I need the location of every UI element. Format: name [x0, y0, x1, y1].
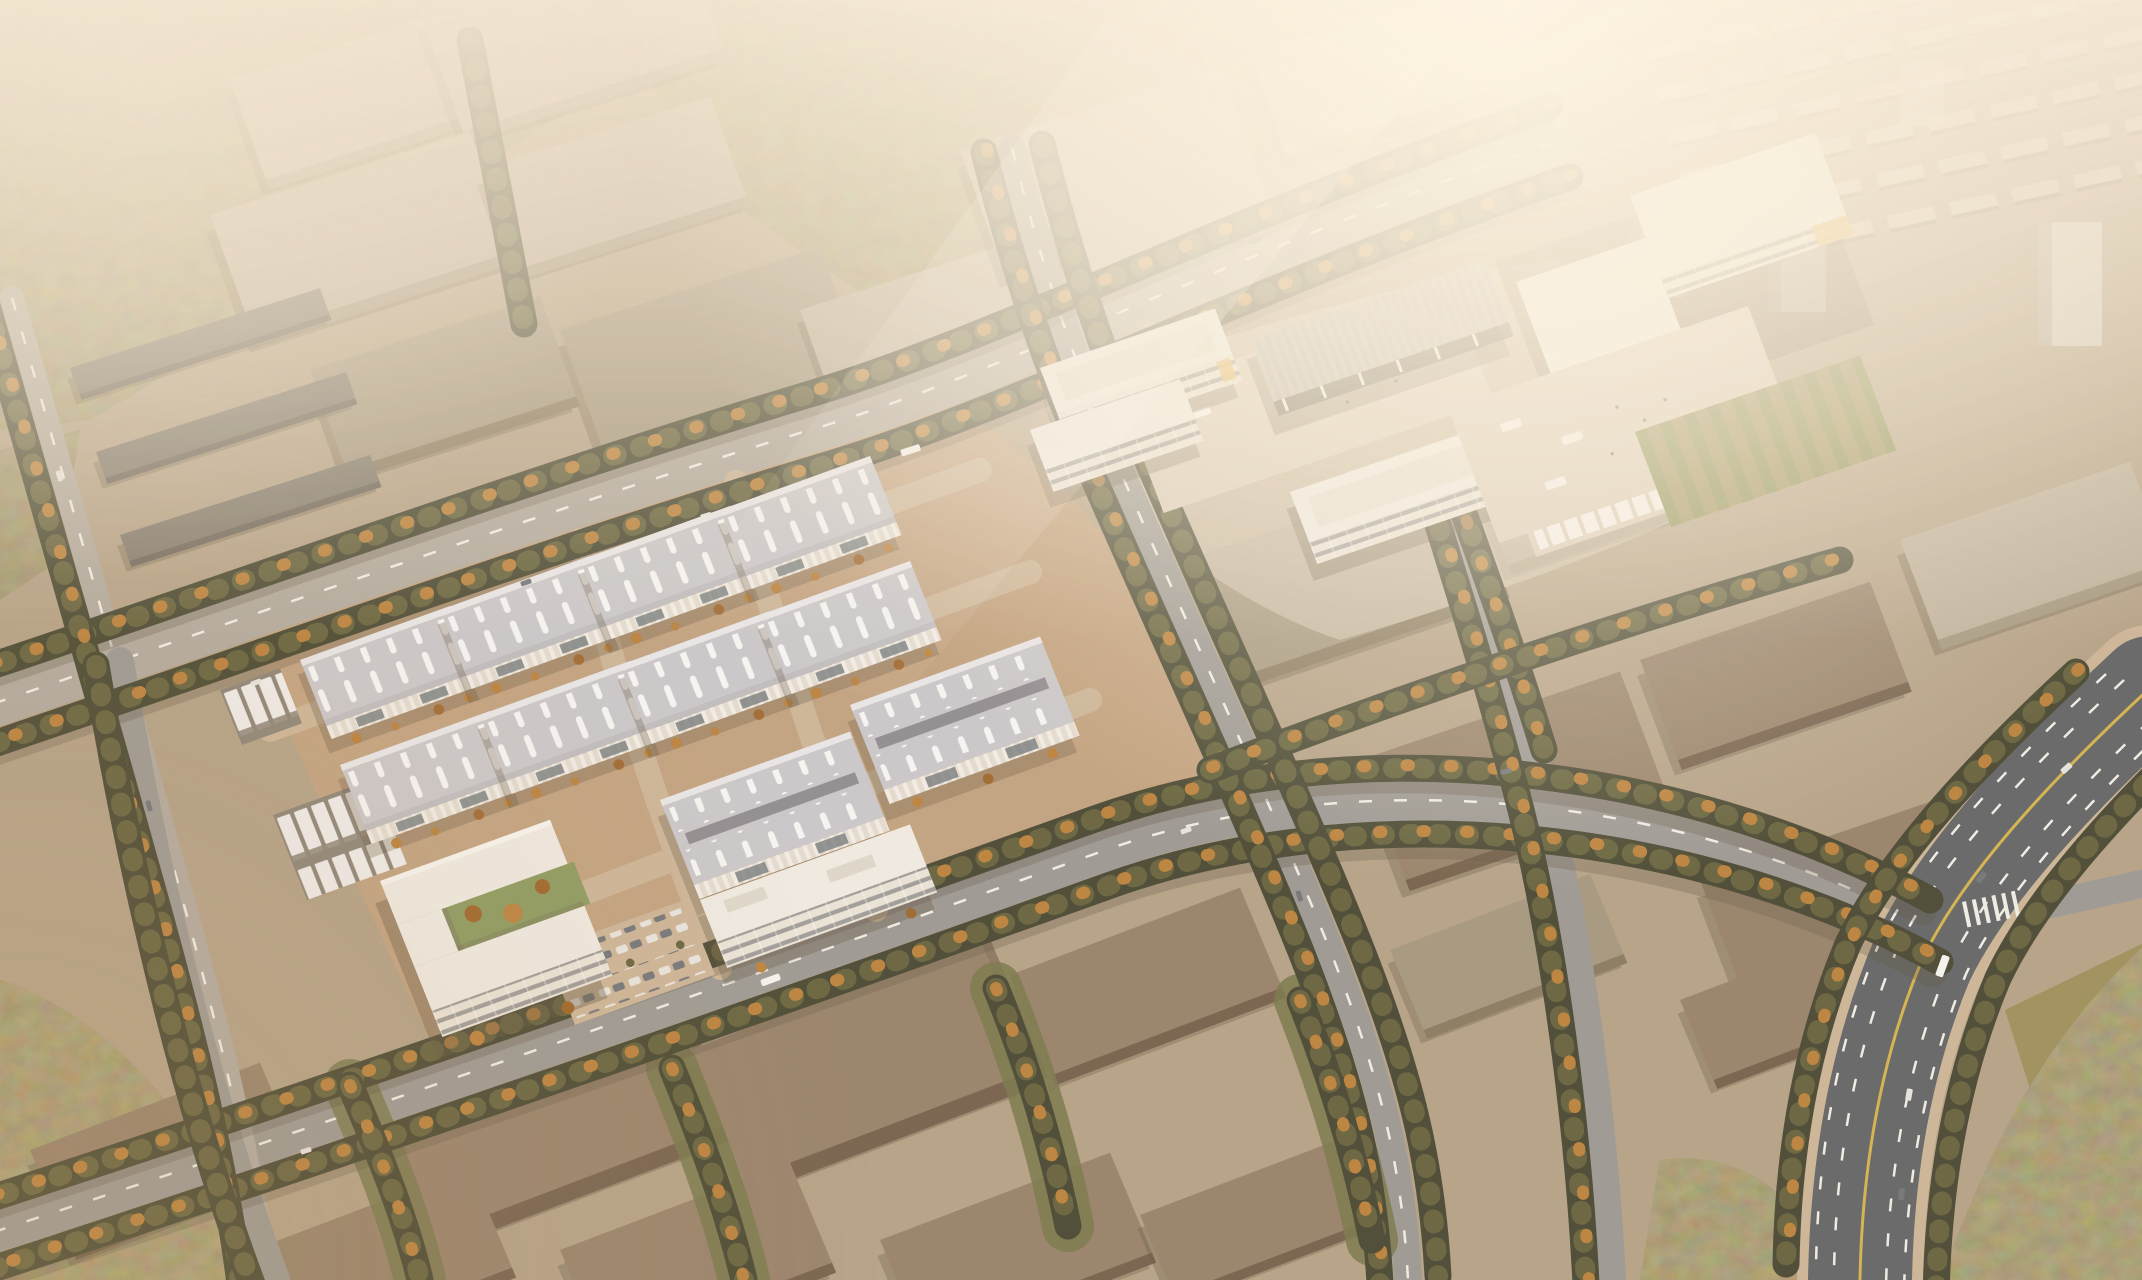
warm-tint: [0, 0, 2142, 1280]
atmosphere-overlays: [0, 0, 2142, 1280]
industrial-park-scene: Aerial rendering of an industrial park m…: [0, 0, 2142, 1280]
aerial-render: Aerial rendering of an industrial park m…: [0, 0, 2142, 1280]
